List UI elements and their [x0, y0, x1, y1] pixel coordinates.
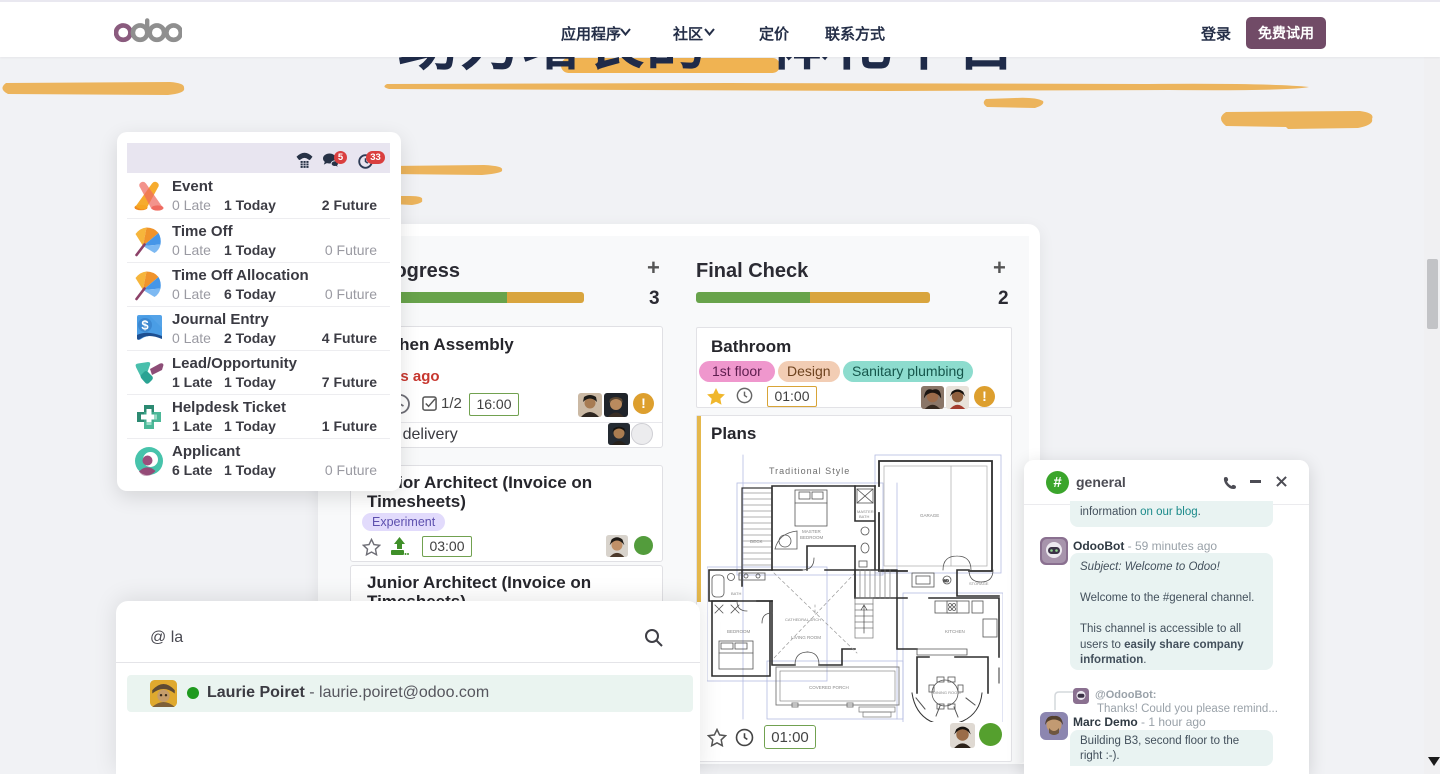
svg-text:STORAGE: STORAGE — [969, 581, 989, 586]
svg-text:GARAGE: GARAGE — [920, 513, 939, 518]
svg-text:BATH: BATH — [731, 591, 741, 596]
svg-text:BATH: BATH — [859, 514, 869, 519]
svg-text:COVERED PORCH: COVERED PORCH — [809, 685, 849, 690]
svg-text:BEDROOM: BEDROOM — [727, 629, 751, 634]
svg-text:MASTER: MASTER — [802, 529, 822, 534]
svg-text:KITCHEN: KITCHEN — [945, 629, 965, 634]
svg-text:DECK: DECK — [750, 539, 763, 544]
svg-text:BEDROOM: BEDROOM — [800, 535, 824, 540]
svg-text:LIVING ROOM: LIVING ROOM — [791, 635, 821, 640]
svg-text:WD: WD — [943, 579, 949, 583]
svg-text:DINING ROOM: DINING ROOM — [933, 690, 961, 695]
svg-text:Traditional Style: Traditional Style — [769, 466, 850, 476]
svg-text:CATHEDRAL ARCH: CATHEDRAL ARCH — [785, 617, 821, 622]
